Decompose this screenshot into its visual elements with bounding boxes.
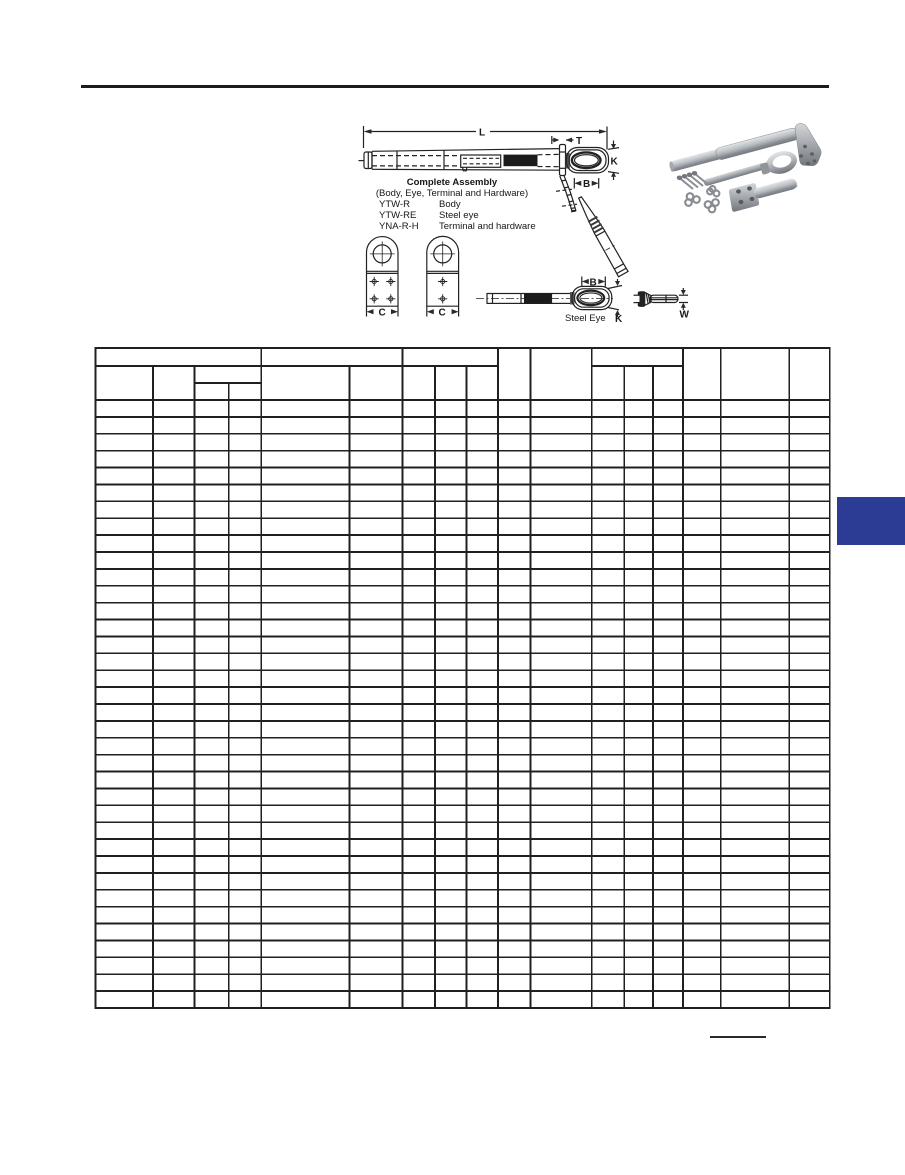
svg-text:B: B	[583, 179, 590, 190]
svg-text:W: W	[680, 310, 690, 321]
svg-text:K: K	[611, 157, 619, 168]
svg-text:B: B	[590, 277, 597, 288]
svg-text:C: C	[439, 308, 446, 319]
svg-text:K: K	[615, 314, 623, 325]
svg-text:C: C	[379, 308, 386, 319]
svg-text:Steel Eye: Steel Eye	[565, 313, 606, 324]
svg-text:T: T	[576, 136, 582, 147]
svg-text:L: L	[479, 128, 485, 139]
